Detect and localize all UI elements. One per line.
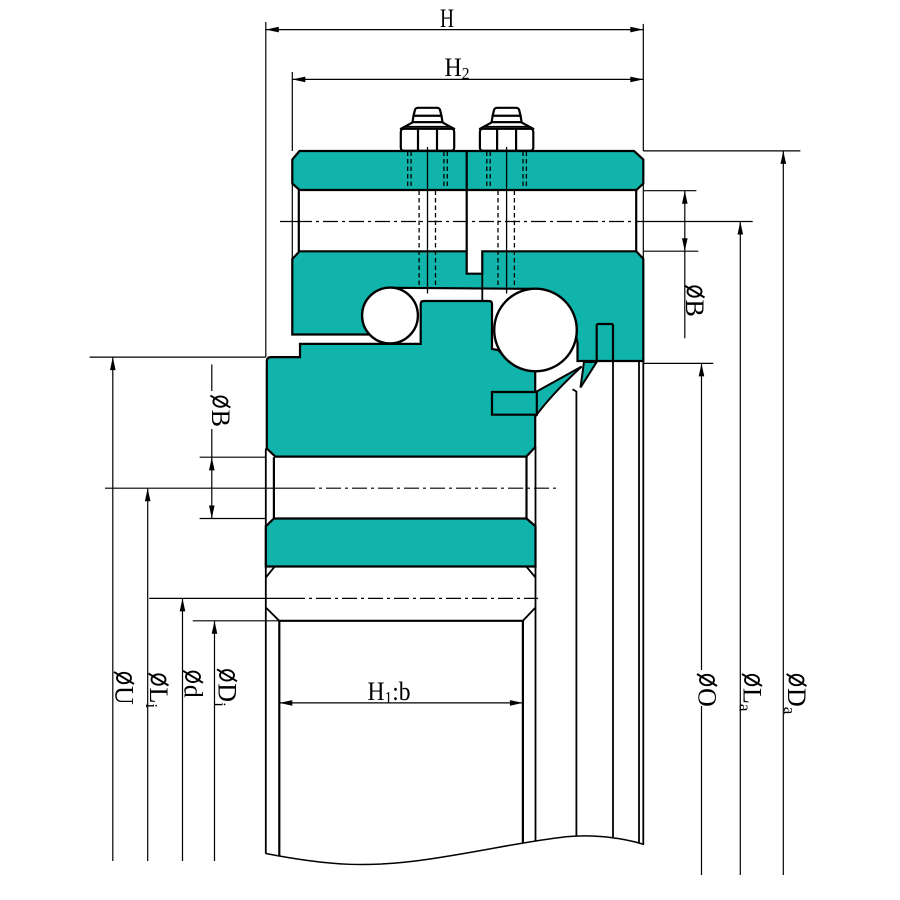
- svg-text:O: O: [693, 688, 722, 707]
- svg-text:B: B: [680, 300, 709, 317]
- svg-text:H: H: [440, 4, 454, 33]
- svg-text:d: d: [179, 685, 208, 698]
- svg-text:U: U: [110, 686, 139, 705]
- svg-text:B: B: [206, 410, 235, 427]
